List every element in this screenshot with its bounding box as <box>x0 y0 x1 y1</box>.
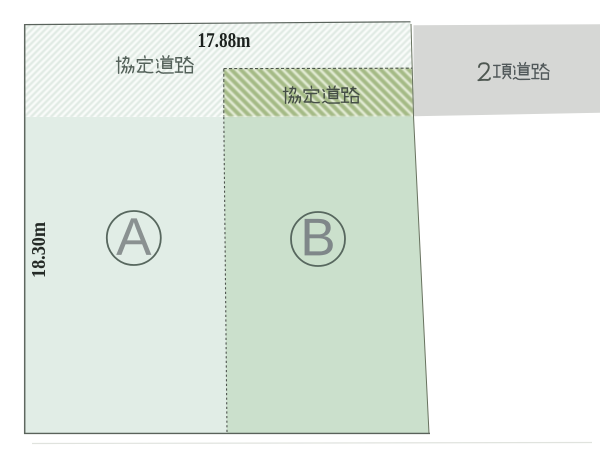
svg-text:17.88m: 17.88m <box>197 28 250 52</box>
svg-text:18.30m: 18.30m <box>29 222 50 278</box>
svg-text:B: B <box>300 208 335 267</box>
svg-text:A: A <box>116 208 152 267</box>
